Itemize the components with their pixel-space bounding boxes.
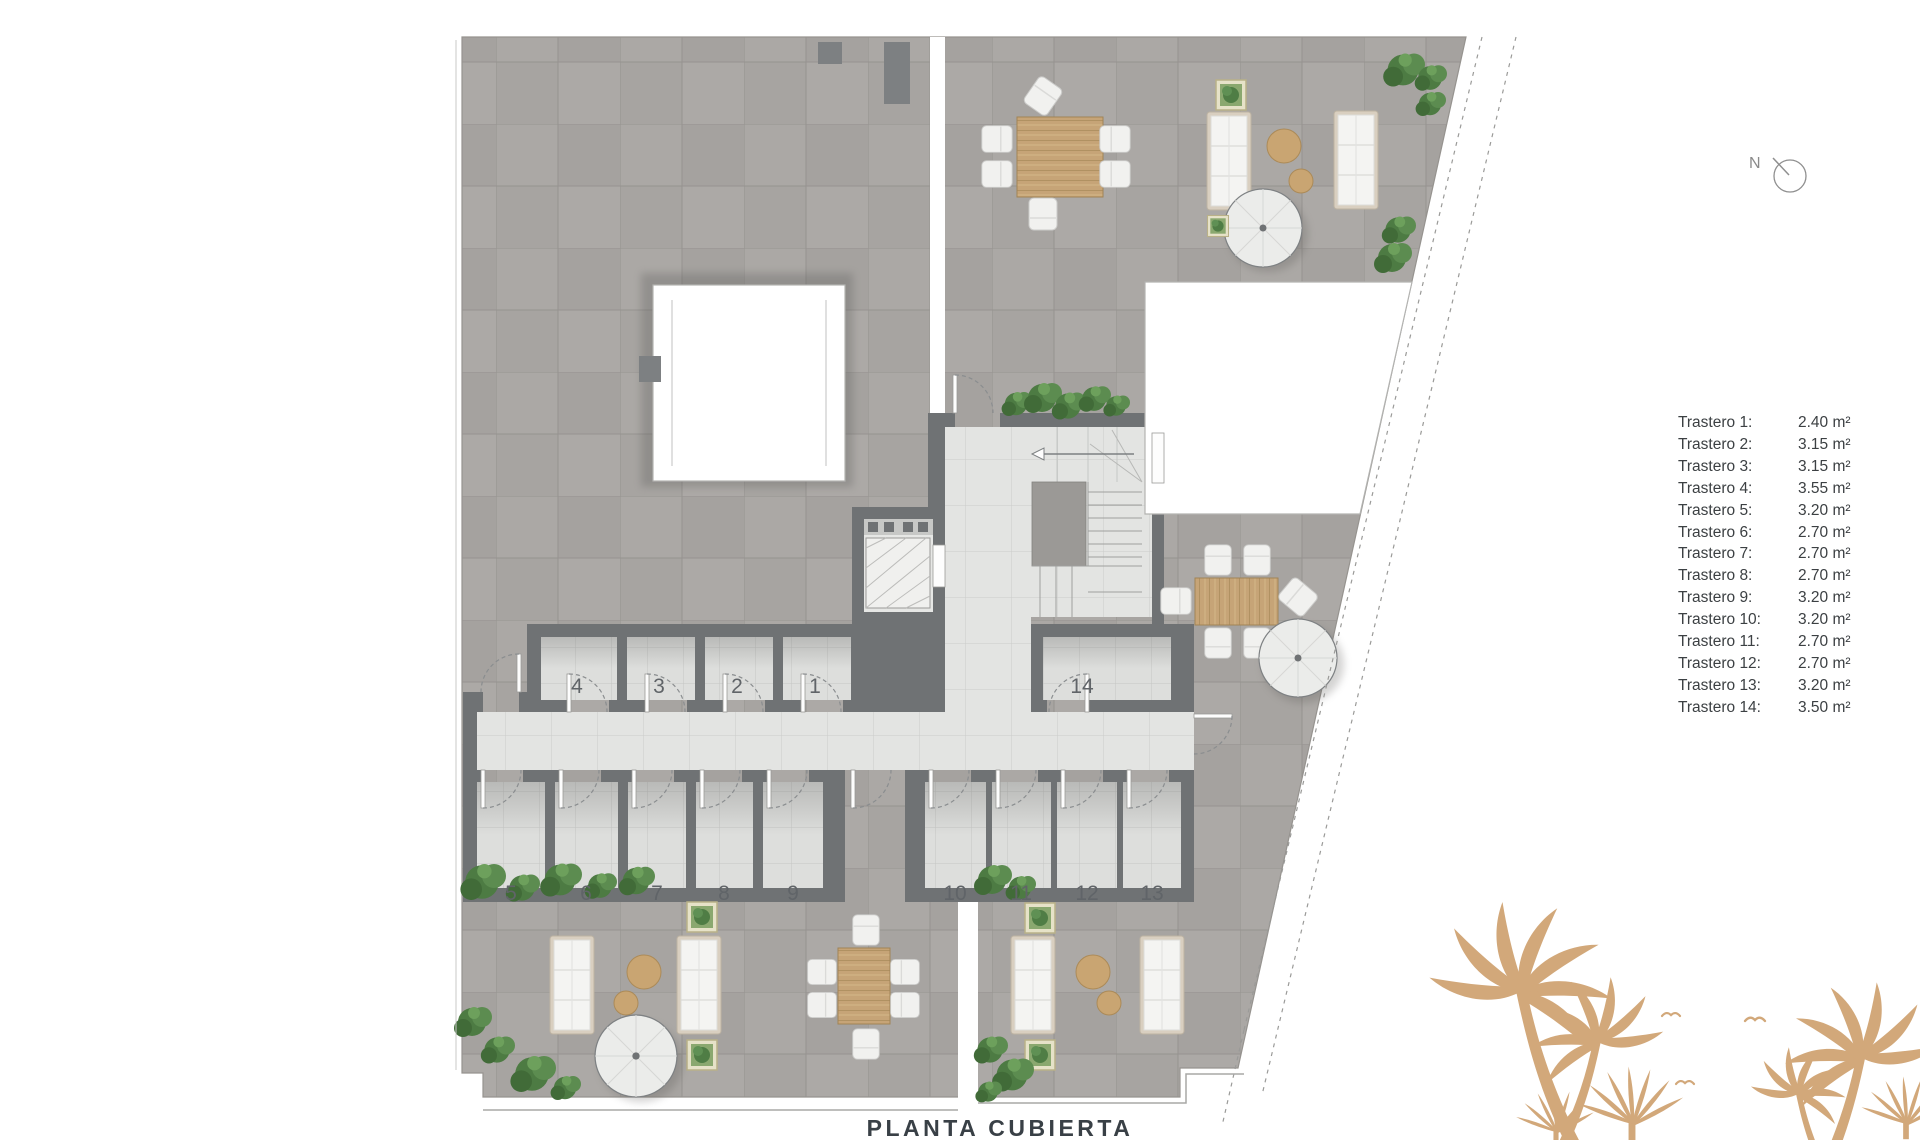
elevator-door	[933, 545, 945, 587]
legend-row: Trastero 5:3.20 m²	[1678, 500, 1868, 522]
round-side-table	[1097, 991, 1121, 1015]
storage-areas-legend: Trastero 1:2.40 m² Trastero 2:3.15 m² Tr…	[1678, 412, 1868, 719]
legend-room-area: 3.20 m²	[1798, 500, 1868, 522]
legend-row: Trastero 8:2.70 m²	[1678, 565, 1868, 587]
room-label: 13	[1140, 882, 1163, 905]
planter	[1025, 903, 1055, 933]
chair	[853, 915, 880, 945]
chair	[853, 1029, 880, 1059]
legend-room-area: 2.40 m²	[1798, 412, 1868, 434]
chair	[982, 126, 1012, 153]
bird-icon	[1676, 1081, 1694, 1084]
legend-row: Trastero 6:2.70 m²	[1678, 522, 1868, 544]
chair	[1100, 126, 1130, 153]
east-void	[1145, 282, 1412, 514]
legend-room-name: Trastero 12:	[1678, 653, 1798, 675]
legend-room-area: 3.20 m²	[1798, 609, 1868, 631]
page-title: PLANTA CUBIERTA	[720, 1115, 1280, 1140]
room-label: 6	[580, 882, 592, 905]
legend-room-name: Trastero 7:	[1678, 543, 1798, 565]
sofa	[550, 936, 594, 1034]
legend-room-area: 3.15 m²	[1798, 456, 1868, 478]
planter	[687, 1040, 717, 1070]
legend-row: Trastero 14:3.50 m²	[1678, 697, 1868, 719]
legend-room-area: 3.15 m²	[1798, 434, 1868, 456]
floor-plan-page: 1 2 3 4 5 6 7 8 9 10 11 12 13 14 N Trast…	[0, 0, 1920, 1140]
sofa	[1334, 111, 1378, 209]
legend-room-name: Trastero 9:	[1678, 587, 1798, 609]
round-side-table	[1289, 169, 1313, 193]
sofa	[1140, 936, 1184, 1034]
planter	[1208, 216, 1229, 237]
skylight-void	[653, 285, 845, 481]
legend-row: Trastero 4:3.55 m²	[1678, 478, 1868, 500]
legend-row: Trastero 3:3.15 m²	[1678, 456, 1868, 478]
chair	[1029, 198, 1057, 230]
legend-row: Trastero 2:3.15 m²	[1678, 434, 1868, 456]
round-side-table	[627, 955, 661, 989]
legend-room-name: Trastero 11:	[1678, 631, 1798, 653]
dining-table	[1195, 578, 1278, 625]
room-label: 4	[571, 675, 583, 698]
roof-divider-north	[930, 37, 945, 413]
legend-room-name: Trastero 10:	[1678, 609, 1798, 631]
compass-north-label: N	[1749, 155, 1761, 172]
bird-icon	[1662, 1013, 1680, 1016]
chimney-block	[884, 42, 910, 104]
planter	[1216, 80, 1246, 110]
chair	[891, 992, 920, 1017]
legend-room-name: Trastero 2:	[1678, 434, 1798, 456]
fan-palm	[1578, 1067, 1686, 1140]
chair	[982, 161, 1012, 188]
stair-window	[1152, 433, 1164, 483]
chair	[1161, 588, 1191, 615]
room-label: 2	[731, 675, 743, 698]
legend-row: Trastero 7:2.70 m²	[1678, 543, 1868, 565]
sofa	[1011, 936, 1055, 1034]
room-label: 11	[1010, 882, 1032, 905]
chair	[808, 992, 837, 1017]
room-label: 14	[1070, 675, 1094, 698]
palm-decoration	[1427, 902, 1920, 1140]
chair	[1205, 545, 1232, 575]
legend-room-name: Trastero 1:	[1678, 412, 1798, 434]
corridor-floor	[477, 712, 1194, 770]
chimney-block	[818, 42, 842, 64]
legend-room-area: 2.70 m²	[1798, 631, 1868, 653]
legend-room-name: Trastero 3:	[1678, 456, 1798, 478]
legend-row: Trastero 12:2.70 m²	[1678, 653, 1868, 675]
palm-tree	[1427, 902, 1613, 1140]
fan-palm	[1861, 1077, 1920, 1140]
north-compass: N	[1749, 155, 1806, 192]
bird-icon	[1745, 1018, 1765, 1021]
planter	[687, 902, 717, 932]
chair	[808, 959, 837, 984]
elevator-cab	[866, 538, 930, 608]
legend-room-area: 3.20 m²	[1798, 675, 1868, 697]
room-label: 12	[1075, 882, 1098, 905]
legend-row: Trastero 11:2.70 m²	[1678, 631, 1868, 653]
legend-row: Trastero 10:3.20 m²	[1678, 609, 1868, 631]
legend-room-name: Trastero 5:	[1678, 500, 1798, 522]
chair	[1205, 628, 1232, 658]
room-label: 9	[787, 882, 799, 905]
legend-room-area: 2.70 m²	[1798, 653, 1868, 675]
legend-row: Trastero 1:2.40 m²	[1678, 412, 1868, 434]
legend-room-area: 2.70 m²	[1798, 565, 1868, 587]
dining-table	[1017, 117, 1103, 197]
legend-room-name: Trastero 13:	[1678, 675, 1798, 697]
room-label: 1	[809, 675, 821, 698]
lobby-floor	[945, 427, 1031, 712]
dining-table	[838, 948, 890, 1024]
roof-vent-block	[639, 356, 661, 382]
parasol-umbrella	[595, 1015, 677, 1097]
floor-plan-drawing: 1 2 3 4 5 6 7 8 9 10 11 12 13 14 N	[0, 0, 1920, 1140]
chair	[891, 959, 920, 984]
room-label: 7	[651, 882, 663, 905]
legend-room-name: Trastero 8:	[1678, 565, 1798, 587]
room-label: 3	[653, 675, 665, 698]
legend-room-area: 3.50 m²	[1798, 697, 1868, 719]
legend-room-name: Trastero 14:	[1678, 697, 1798, 719]
parasol-umbrella	[1224, 189, 1302, 267]
room-label: 5	[505, 882, 517, 905]
chair	[1100, 161, 1130, 188]
room-label: 10	[943, 882, 966, 905]
legend-room-area: 2.70 m²	[1798, 522, 1868, 544]
legend-row: Trastero 13:3.20 m²	[1678, 675, 1868, 697]
round-side-table	[1076, 955, 1110, 989]
legend-room-name: Trastero 6:	[1678, 522, 1798, 544]
legend-room-area: 2.70 m²	[1798, 543, 1868, 565]
room-label: 8	[718, 882, 730, 905]
legend-room-name: Trastero 4:	[1678, 478, 1798, 500]
chair	[1244, 545, 1271, 575]
parasol-umbrella	[1259, 619, 1337, 697]
legend-room-area: 3.55 m²	[1798, 478, 1868, 500]
elevator	[864, 519, 945, 612]
sofa	[677, 936, 721, 1034]
round-side-table	[1267, 129, 1301, 163]
legend-row: Trastero 9:3.20 m²	[1678, 587, 1868, 609]
stair-landing	[1032, 482, 1086, 566]
round-side-table	[614, 991, 638, 1015]
legend-room-area: 3.20 m²	[1798, 587, 1868, 609]
roof-divider-south	[958, 902, 978, 1098]
